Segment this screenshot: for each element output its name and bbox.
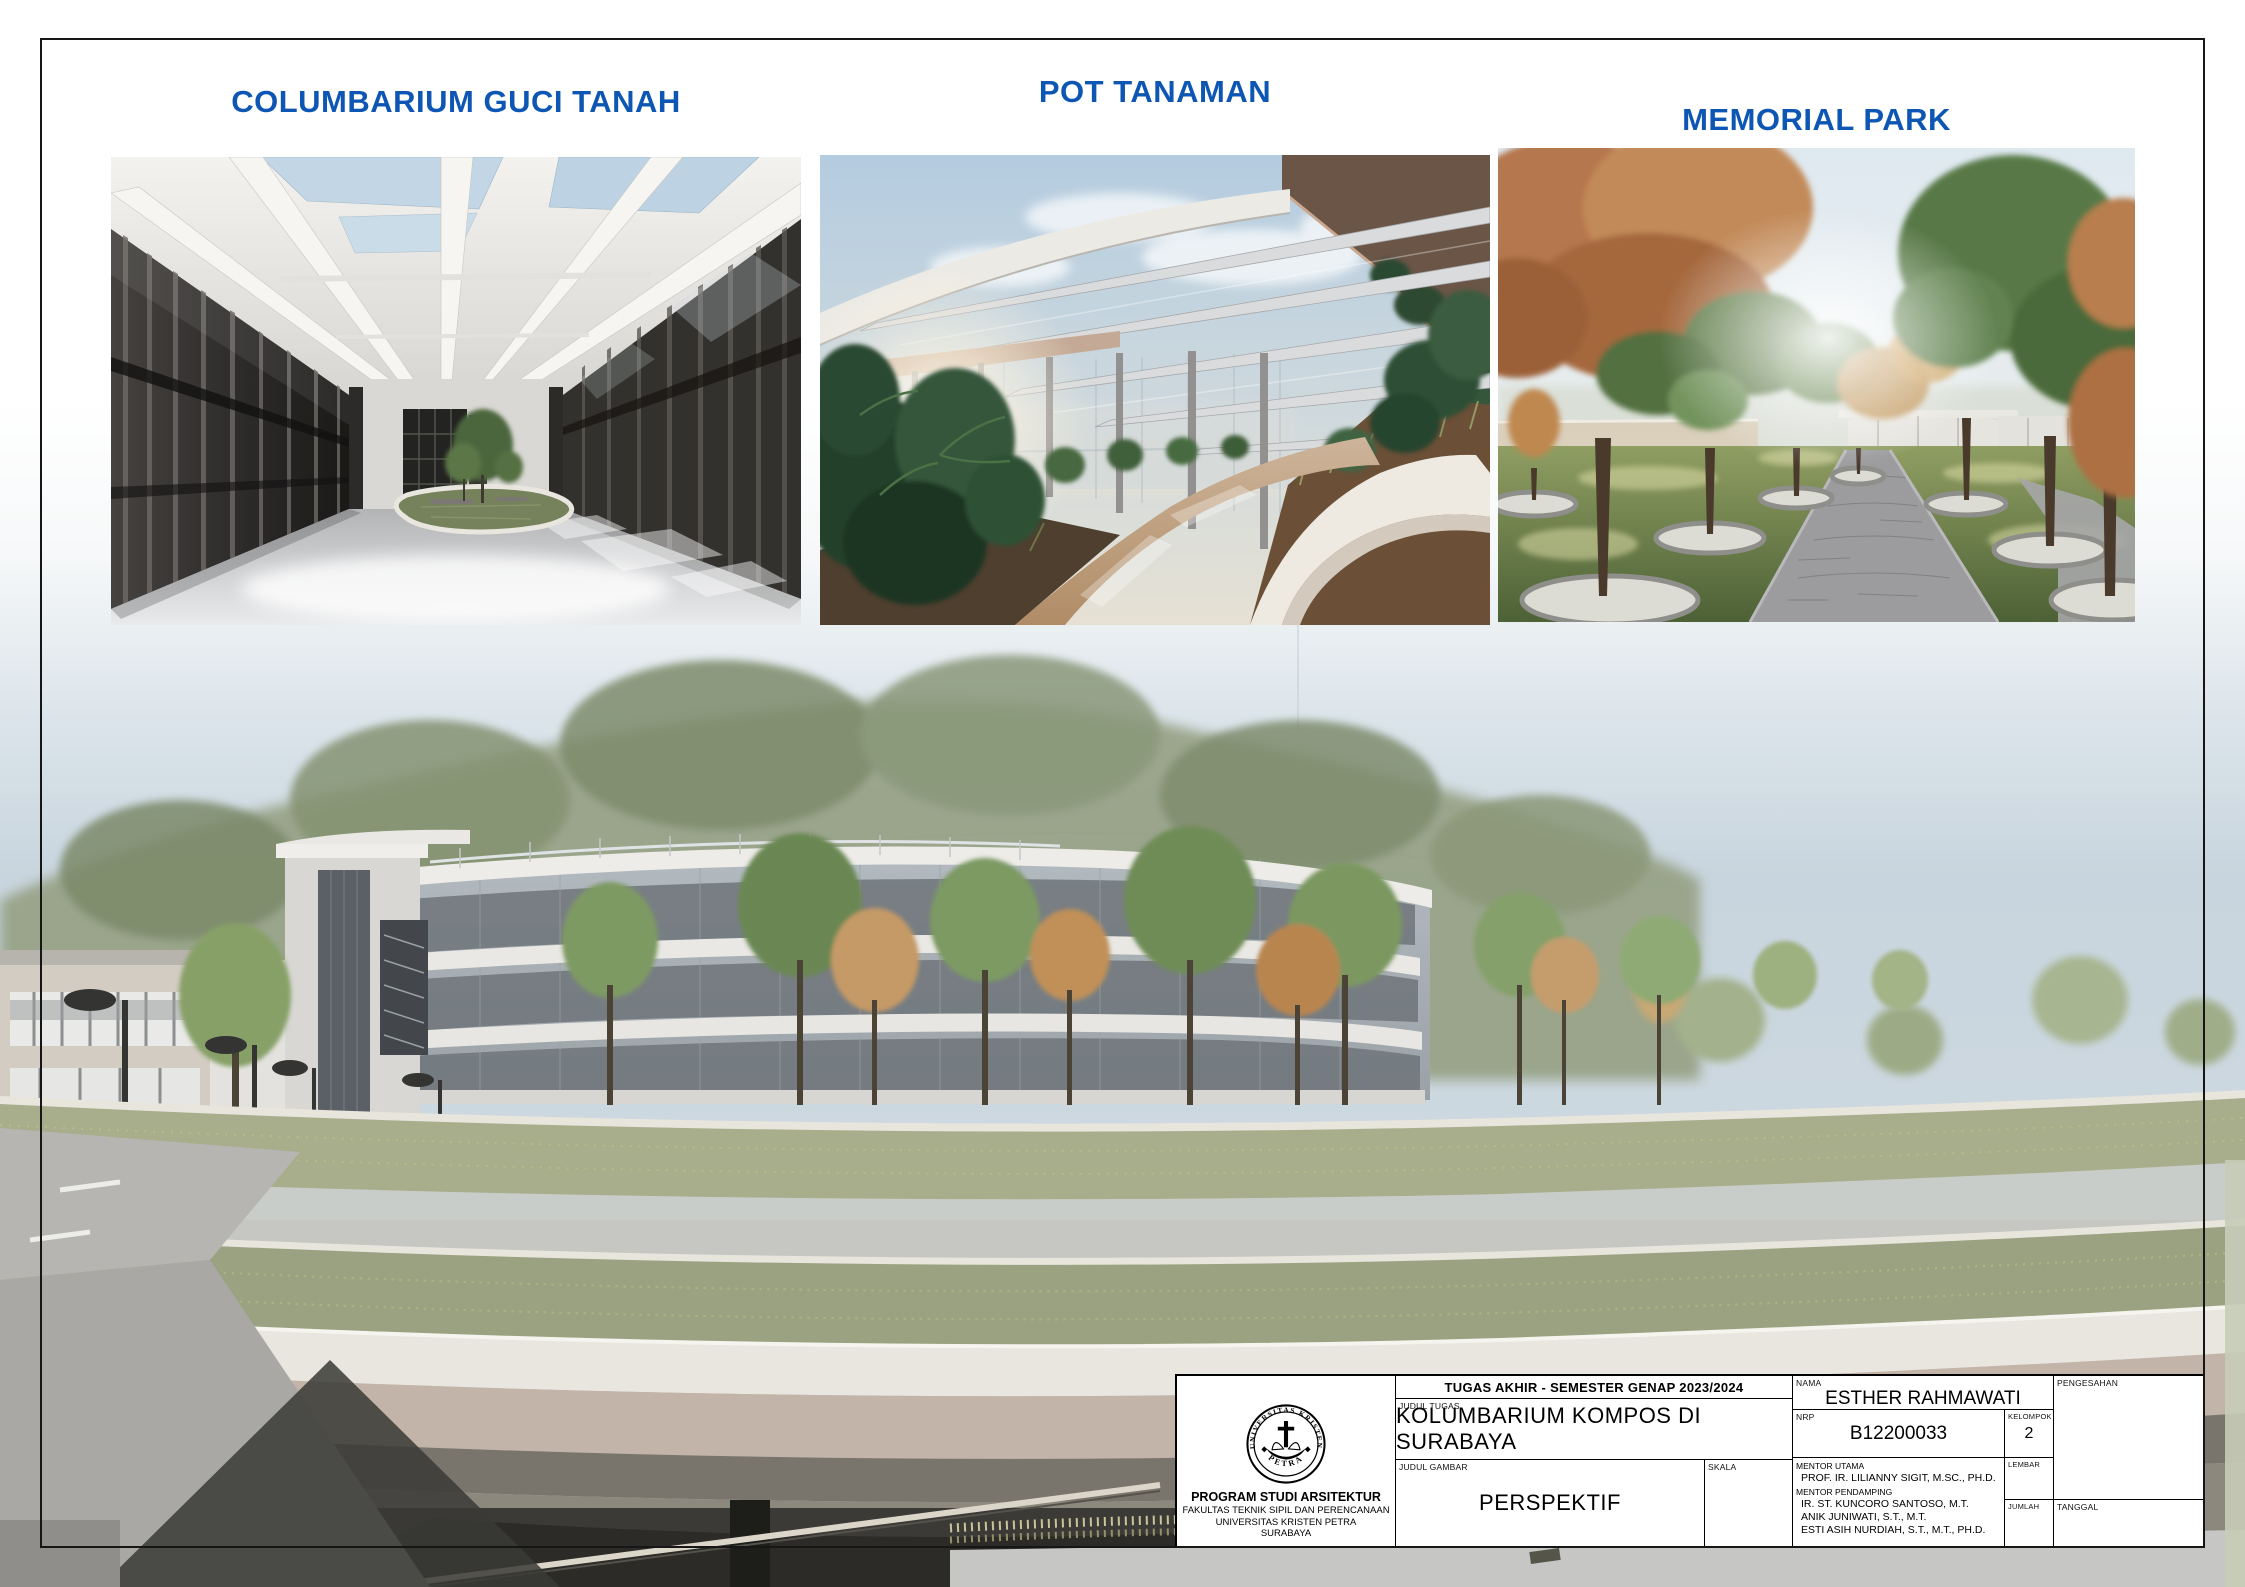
program-name: PROGRAM STUDI ARSITEKTUR: [1191, 1490, 1381, 1505]
mentor-cell: MENTOR UTAMA PROF. IR. LILIANNY SIGIT, M…: [1793, 1458, 2005, 1546]
skala-value: [1705, 1460, 1792, 1546]
columbarium-heading: COLUMBARIUM GUCI TANAH: [111, 84, 801, 120]
kelompok-label: KELOMPOK: [2008, 1412, 2052, 1421]
nrp-value: B12200033: [1793, 1410, 2004, 1457]
skala-label: SKALA: [1708, 1462, 1736, 1472]
university-name: UNIVERSITAS KRISTEN PETRA: [1216, 1517, 1357, 1529]
lembar-cell: LEMBAR: [2005, 1458, 2054, 1500]
sheet-header: TUGAS AKHIR - SEMESTER GENAP 2023/2024: [1396, 1376, 1792, 1398]
institution-cell: UNIVERSITAS KRISTEN PETRA PROGRAM STUDI …: [1177, 1376, 1396, 1546]
pengesahan-cell: PENGESAHAN: [2054, 1376, 2203, 1500]
nama-label: NAMA: [1796, 1378, 1821, 1388]
university-seal-icon: UNIVERSITAS KRISTEN PETRA: [1245, 1402, 1327, 1486]
mentor-pendamping-3: ESTI ASIH NURDIAH, S.T., M.T., PH.D.: [1801, 1524, 2004, 1536]
pot-tanaman-heading: POT TANAMAN: [820, 74, 1490, 110]
city-name: SURABAYA: [1261, 1528, 1311, 1540]
title-block: UNIVERSITAS KRISTEN PETRA PROGRAM STUDI …: [1175, 1374, 2205, 1548]
pot-tanaman-render-illustration: [820, 155, 1490, 625]
skala-cell: SKALA: [1705, 1460, 1793, 1546]
jumlah-label: JUMLAH: [2008, 1502, 2039, 1511]
mentor-pendamping-1: IR. ST. KUNCORO SANTOSO, M.T.: [1801, 1498, 2004, 1510]
faculty-name: FAKULTAS TEKNIK SIPIL DAN PERENCANAAN: [1182, 1505, 1389, 1517]
nrp-label: NRP: [1796, 1412, 1815, 1422]
judul-gambar-label: JUDUL GAMBAR: [1399, 1462, 1468, 1472]
tanggal-cell: TANGGAL: [2054, 1500, 2203, 1546]
memorial-park-render-illustration: [1498, 148, 2135, 622]
memorial-park-heading: MEMORIAL PARK: [1498, 102, 2135, 138]
mentor-pendamping-label: MENTOR PENDAMPING: [1796, 1487, 2004, 1497]
sheet-header-cell: TUGAS AKHIR - SEMESTER GENAP 2023/2024: [1396, 1376, 1793, 1399]
nama-cell: NAMA ESTHER RAHMAWATI: [1793, 1376, 2054, 1410]
columbarium-render-image: [111, 157, 801, 625]
judul-tugas-cell: JUDUL TUGAS KOLUMBARIUM KOMPOS DI SURABA…: [1396, 1399, 1793, 1460]
memorial-park-render-image: [1498, 148, 2135, 622]
mentor-utama-value: PROF. IR. LILIANNY SIGIT, M.SC., PH.D.: [1801, 1472, 2004, 1484]
pengesahan-label: PENGESAHAN: [2057, 1378, 2118, 1388]
pot-tanaman-render-image: [820, 155, 1490, 625]
jumlah-cell: JUMLAH: [2005, 1500, 2054, 1546]
nrp-cell: NRP B12200033: [1793, 1410, 2005, 1458]
judul-gambar-value: PERSPEKTIF: [1396, 1460, 1704, 1546]
mentor-utama-label: MENTOR UTAMA: [1796, 1461, 2004, 1471]
mentor-pendamping-2: ANIK JUNIWATI, S.T., M.T.: [1801, 1511, 2004, 1523]
judul-tugas-label: JUDUL TUGAS: [1399, 1401, 1460, 1411]
judul-gambar-cell: JUDUL GAMBAR PERSPEKTIF: [1396, 1460, 1705, 1546]
lembar-label: LEMBAR: [2008, 1460, 2040, 1469]
presentation-sheet: COLUMBARIUM GUCI TANAH POT TANAMAN MEMOR…: [0, 0, 2245, 1587]
kelompok-cell: KELOMPOK 2: [2005, 1410, 2054, 1458]
columbarium-render-illustration: [111, 157, 801, 625]
tanggal-label: TANGGAL: [2057, 1502, 2098, 1512]
